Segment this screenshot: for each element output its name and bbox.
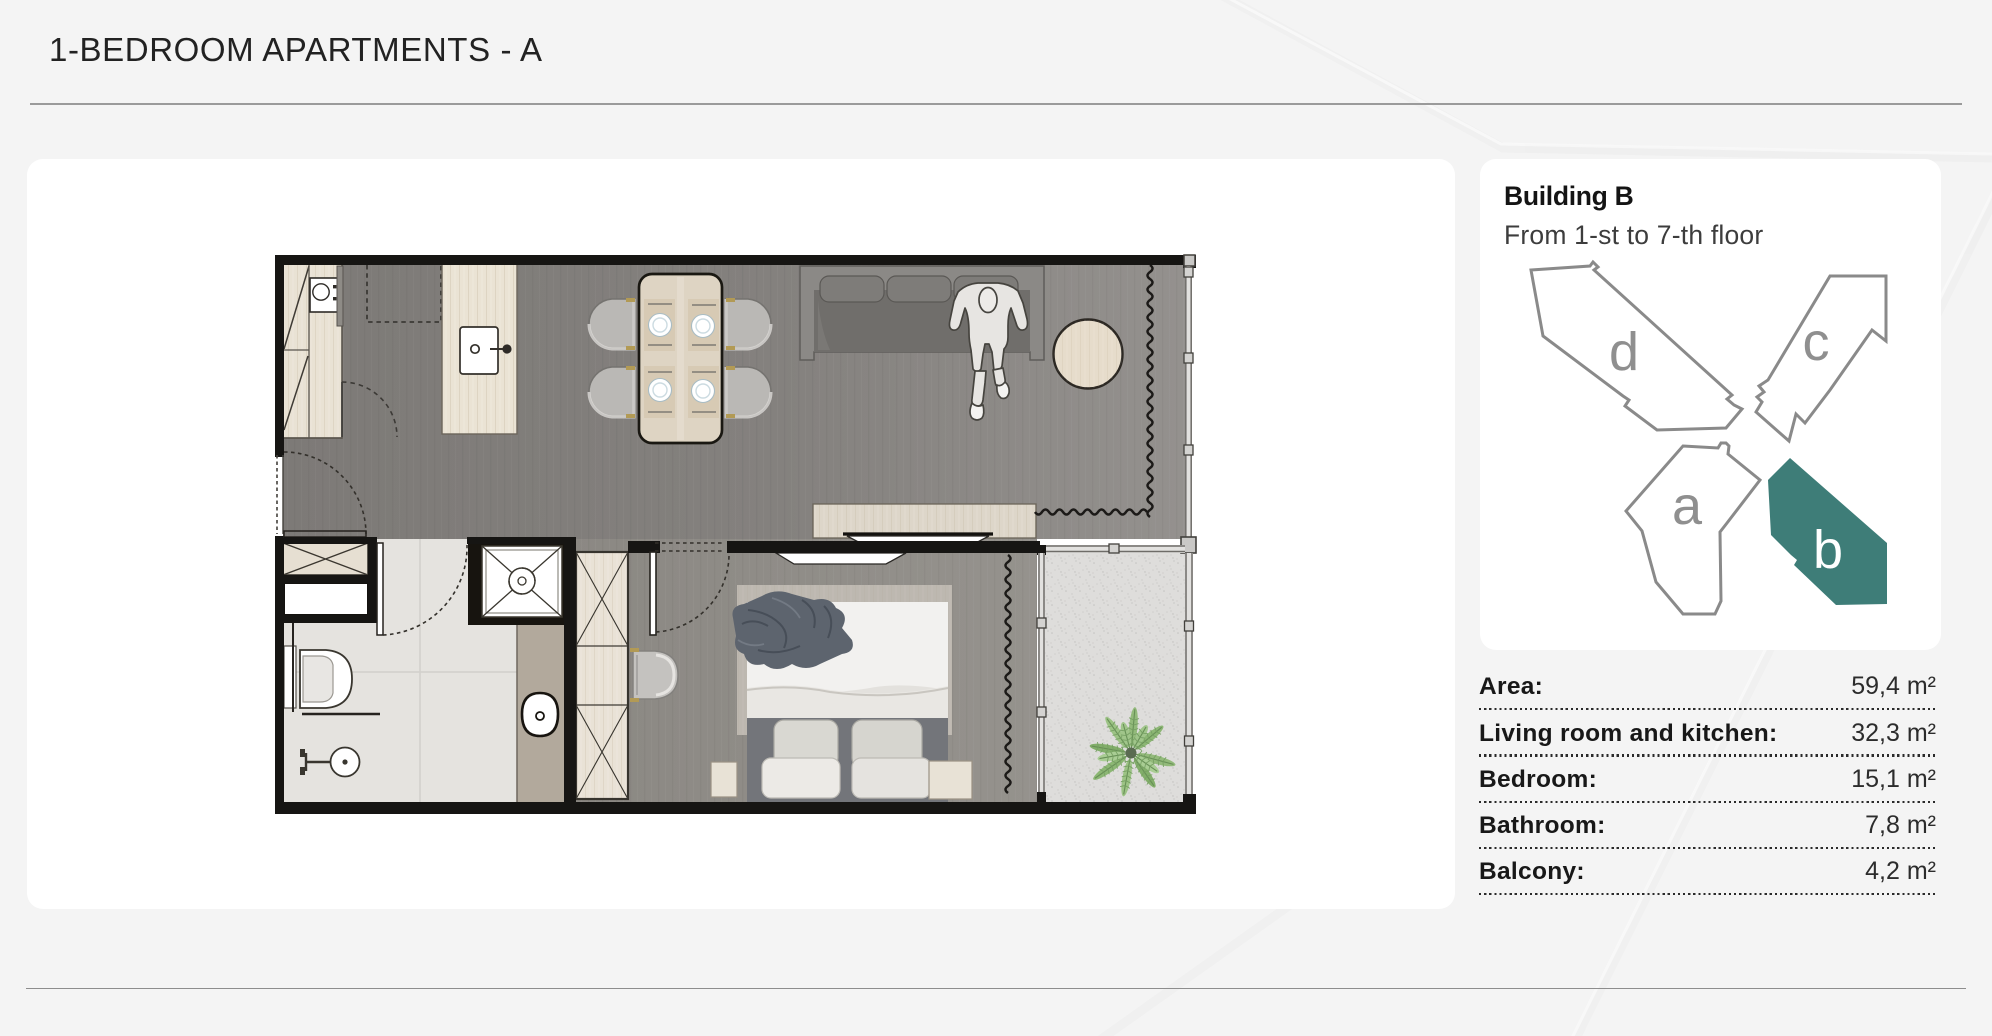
svg-text:d: d bbox=[1609, 322, 1639, 382]
svg-text:a: a bbox=[1672, 476, 1703, 536]
svg-text:c: c bbox=[1803, 312, 1830, 372]
svg-text:b: b bbox=[1813, 520, 1843, 580]
